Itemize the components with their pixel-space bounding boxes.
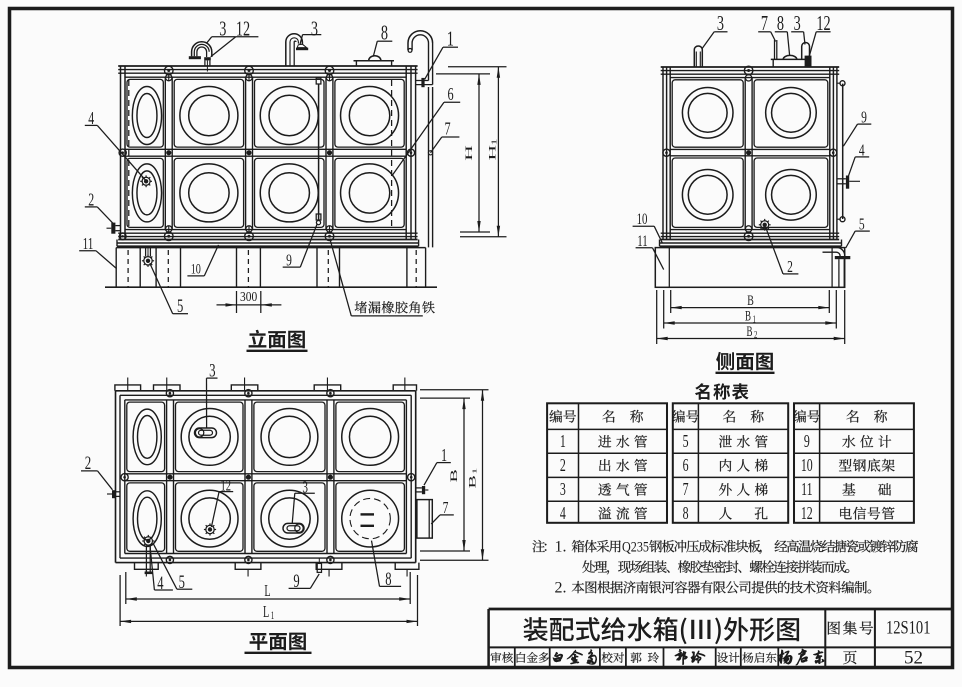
svg-text:9: 9 bbox=[804, 433, 810, 452]
svg-text:H: H bbox=[487, 145, 498, 161]
svg-text:11: 11 bbox=[637, 232, 648, 250]
svg-text:11: 11 bbox=[801, 481, 812, 500]
svg-text:6: 6 bbox=[683, 457, 689, 476]
svg-text:1: 1 bbox=[560, 433, 566, 452]
svg-text:300: 300 bbox=[240, 289, 257, 304]
svg-text:12: 12 bbox=[801, 505, 813, 524]
svg-text:H: H bbox=[463, 145, 474, 161]
svg-text:3: 3 bbox=[560, 481, 566, 500]
svg-text:1: 1 bbox=[271, 610, 275, 623]
svg-text:8: 8 bbox=[683, 505, 689, 524]
svg-text:10: 10 bbox=[801, 457, 813, 476]
svg-text:2: 2 bbox=[754, 328, 758, 340]
svg-text:B: B bbox=[745, 307, 751, 324]
svg-text:5: 5 bbox=[179, 573, 185, 593]
svg-text:B: B bbox=[747, 292, 754, 308]
svg-text:52: 52 bbox=[904, 648, 923, 669]
svg-text:1.: 1. bbox=[555, 538, 567, 555]
svg-text:Q235: Q235 bbox=[622, 539, 649, 555]
svg-text:3: 3 bbox=[311, 17, 318, 40]
svg-text:1: 1 bbox=[471, 468, 479, 475]
svg-text:B: B bbox=[468, 475, 478, 488]
svg-text:10: 10 bbox=[637, 210, 648, 228]
svg-text:3: 3 bbox=[302, 478, 308, 497]
svg-text:L: L bbox=[263, 603, 269, 621]
svg-text:B: B bbox=[747, 323, 753, 340]
svg-text:7: 7 bbox=[683, 481, 689, 500]
svg-text:2.: 2. bbox=[555, 579, 567, 596]
svg-text:12S101: 12S101 bbox=[886, 618, 931, 639]
svg-text:10: 10 bbox=[191, 260, 201, 276]
svg-text:1: 1 bbox=[753, 313, 757, 325]
svg-text:L: L bbox=[264, 581, 270, 599]
svg-text:5: 5 bbox=[683, 433, 689, 452]
svg-text:B: B bbox=[449, 469, 459, 482]
svg-text:4: 4 bbox=[560, 505, 566, 524]
svg-text:2: 2 bbox=[560, 457, 566, 476]
svg-text:1: 1 bbox=[491, 139, 499, 146]
